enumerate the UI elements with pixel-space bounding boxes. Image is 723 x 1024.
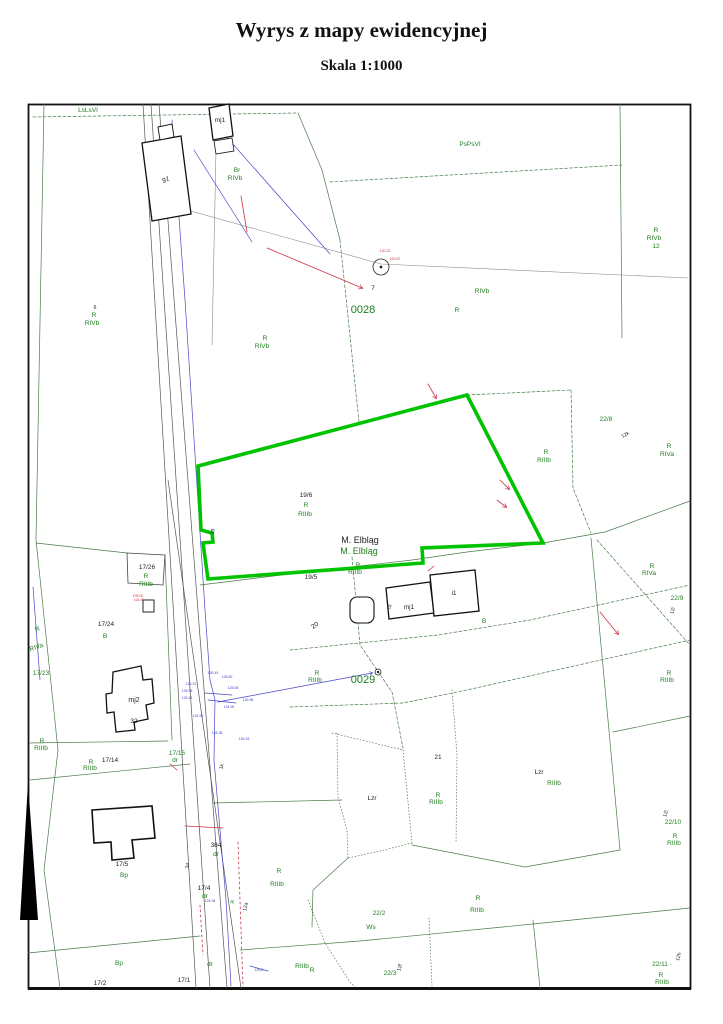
map-label: 12i [662,810,670,818]
map-label: RIVb [475,288,490,295]
map-label: 126.48 [182,696,193,700]
survey-circle-dot [380,266,382,268]
map-label: 17/15 [169,750,186,757]
road-lines [143,104,241,988]
building-mj1-center [386,582,434,619]
map-label: 17/1 [178,977,191,984]
map-label: Lzr [367,795,377,802]
map-label: R [310,967,315,974]
building-17-5 [92,806,155,860]
map-label: 19/6 [300,492,313,499]
map-label: RIIIb [655,979,669,986]
building-shed [158,124,174,140]
map-label: 7 [371,285,375,292]
map-label: Bp [120,872,128,879]
map-label: RIIIb [547,780,561,787]
map-label: 124.38 [212,731,223,735]
map-label: RIIIb [660,677,674,684]
map-label: 120.22 [380,249,391,253]
map-label: R [544,449,549,456]
map-label: 12f [396,963,404,972]
map-label: 126.49 [208,671,219,675]
map-label: Lzr [534,769,544,776]
map-label: i1 [451,590,456,597]
map-label: 17/14 [102,757,119,764]
map-label: M. Elbląg [341,535,379,545]
building-s [143,600,154,612]
map-label: 0029 [351,674,375,686]
map-label: 22/2 [373,910,386,917]
map-label: RIVa [660,451,674,458]
map-label: 12i [669,607,677,615]
cadastral-map: LsLsVImj1g1BrRIVbPsPsVIRRIVb1270028RIVbR… [0,0,723,1024]
map-label: R [436,792,441,799]
map-label: R [650,563,655,570]
map-label: RIVb [255,343,270,350]
map-label: RIVb [228,175,243,182]
map-label: RIIIb [470,907,484,914]
map-label: RIVa [642,570,656,577]
map-label: 126.50 [222,675,233,679]
map-label: LsLsVI [78,107,98,114]
map-label: dr [172,757,179,764]
survey-symbols [373,259,389,675]
map-label: RIIIb [295,963,309,970]
map-label: 17/23 [33,670,50,677]
map-label: RIVb [85,320,100,327]
map-label: 20 [310,621,320,631]
map-label: 6 [94,305,97,311]
map-label: R [667,443,672,450]
map-label: R [144,573,149,580]
map-label: 22/8 [600,416,613,423]
building-tank [350,597,374,623]
north-triangle [20,783,38,920]
map-label: 125.08 [228,686,239,690]
dotted-boundaries [308,690,457,987]
map-label: Ws [366,924,376,931]
utility-lines [33,120,372,986]
map-label: mj1 [404,604,415,611]
building-mj1-top-annex [214,138,234,154]
map-label: 0028 [351,304,375,316]
map-label: 126.31 [186,682,197,686]
map-label: RIIIb [308,677,322,684]
map-label: 17/4 [198,885,211,892]
map-label: R [659,972,664,979]
map-label: RIVa [29,642,45,653]
map-label: R [315,670,320,677]
map-label: 124.99 [193,714,204,718]
map-label: R [304,502,309,509]
map-label: mj1 [215,117,226,124]
benchmark-dot [377,671,379,673]
map-label: RIIIb [429,799,443,806]
map-label: 12a [242,902,249,911]
map-label: RIIIb [83,765,97,772]
map-label: 17/5 [116,861,129,868]
map-label: 125.99 [182,689,193,693]
map-label: RIIIb [537,457,551,464]
map-label: Br [234,167,241,174]
map-label: 17/24 [98,621,115,628]
map-label: RIIIb [348,569,362,576]
map-label: 12 [652,243,660,250]
map-label: 32 [130,718,138,725]
map-label: 104.99 [134,598,145,602]
map-label: 384 [211,842,222,849]
map-label: 22/3 [384,970,397,977]
map-label: M. Elbląg [340,546,378,556]
map-label: dr [213,851,220,858]
map-label: 22/10 [665,819,682,826]
map-label: g1 [162,175,171,183]
map-label: R [230,899,237,904]
map-label: 126.6 [255,968,264,972]
map-label: R [673,833,678,840]
map-label: R [277,868,282,875]
map-label: RIIIb [139,581,153,588]
map-label: 34 [185,862,192,869]
map-label: R [92,312,97,319]
map-label: 12h [675,952,683,962]
map-sheet: Wyrys z mapy ewidencyjnej Skala 1:1000 [0,0,723,1024]
map-label: 126.98 [243,698,254,702]
map-label: 1k [218,763,225,770]
map-label: dr [207,961,214,968]
map-label: R [476,895,481,902]
map-label: RIVb [647,235,662,242]
map-label: dr [202,893,209,900]
map-label: PsPsVI [459,141,481,148]
map-label: Bp [115,960,123,967]
map-label: 124.95 [224,705,235,709]
map-label: R [356,562,361,569]
map-label: 22/11 · [652,961,672,968]
map-label: R [455,307,460,314]
map-label: R [34,625,41,633]
map-label: 22/9 [671,595,684,602]
map-label: R [263,335,268,342]
map-label: 220.87 [390,257,401,261]
map-label: RIIIb [34,745,48,752]
map-label: RIIIb [298,511,312,518]
map-label: B [482,618,486,625]
map-label: 19 [209,528,216,535]
dashed-boundaries [33,113,690,748]
map-label: 17/26 [139,564,156,571]
map-label: 17/2 [94,980,107,987]
map-label: RIIIb [667,840,681,847]
map-label: mj2 [128,697,139,704]
map-label: R [40,738,45,745]
map-label: B [103,633,107,640]
map-label: R [654,227,659,234]
map-label: 12k [621,430,631,439]
map-label: 21 [434,754,442,761]
map-label: 126.34 [239,737,250,741]
map-label: 19/5 [305,574,318,581]
map-label: R [667,670,672,677]
map-label: RIIIb [270,881,284,888]
